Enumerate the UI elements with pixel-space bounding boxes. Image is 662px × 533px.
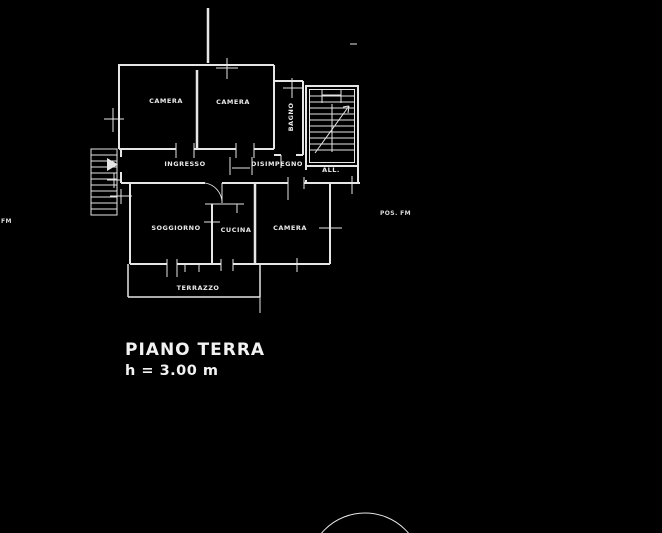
entry-arrow <box>107 158 118 171</box>
room-label-terrazzo: TERRAZZO <box>177 285 220 292</box>
title-block: PIANO TERRA h = 3.00 m <box>125 340 265 379</box>
room-label-ingresso: INGRESSO <box>164 161 205 168</box>
room-label-camera-2: CAMERA <box>216 99 250 106</box>
room-label-vano-scala: ALL. <box>322 167 340 174</box>
room-label-soggiorno: SOGGIORNO <box>151 225 200 232</box>
room-label-cucina: CUCINA <box>221 227 252 234</box>
floor-plan-page: CAMERA CAMERA BAGNO INGRESSO DISIMPEGNO … <box>0 0 662 533</box>
room-label-camera-1: CAMERA <box>149 98 183 105</box>
room-label-disimpegno: DISIMPEGNO <box>251 161 303 168</box>
floor-height: h = 3.00 m <box>125 363 265 379</box>
floor-title: PIANO TERRA <box>125 340 265 360</box>
ext-stair-outline <box>91 149 117 215</box>
site-circle-arc <box>308 513 422 533</box>
door-swing-arc <box>205 183 222 203</box>
floor-plan-drawing <box>0 0 662 533</box>
left-note: FM <box>1 219 12 225</box>
right-note: POS. FM <box>380 211 411 217</box>
room-label-bagno: BAGNO <box>288 103 295 132</box>
room-label-camera-3: CAMERA <box>273 225 307 232</box>
